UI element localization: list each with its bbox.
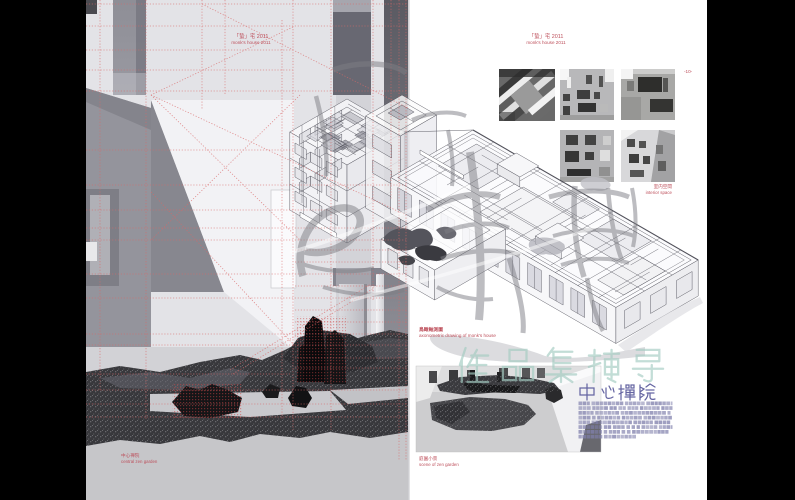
svg-text:axonometric drawing of monk's: axonometric drawing of monk's house [419, 333, 496, 338]
svg-text:monk's house 2011: monk's house 2011 [231, 40, 271, 45]
svg-text:scene of zen garden: scene of zen garden [419, 462, 459, 467]
svg-text:monk's house 2011: monk's house 2011 [526, 40, 566, 45]
svg-text:「蛰」宅 2011: 「蛰」宅 2011 [529, 32, 564, 40]
svg-text:central zen garden: central zen garden [121, 459, 158, 464]
svg-text:interior space: interior space [646, 190, 673, 195]
svg-text:-10-: -10- [684, 69, 693, 74]
svg-text:鳥瞰軸測圖: 鳥瞰軸測圖 [419, 326, 443, 333]
svg-text:庭園小景: 庭園小景 [419, 455, 438, 462]
svg-text:中心禪院: 中心禪院 [121, 452, 140, 459]
svg-text:「蛰」宅 2011: 「蛰」宅 2011 [234, 32, 269, 40]
svg-text:室内空間: 室内空間 [654, 183, 673, 190]
